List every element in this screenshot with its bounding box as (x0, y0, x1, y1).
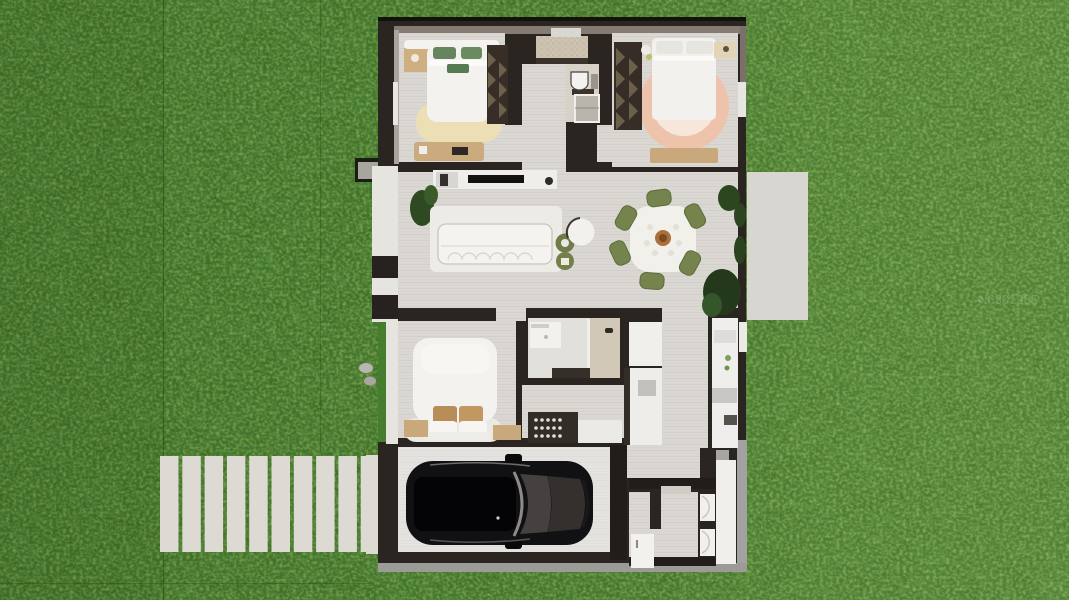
svg-text:N6301965: N6301965 (978, 292, 1038, 307)
